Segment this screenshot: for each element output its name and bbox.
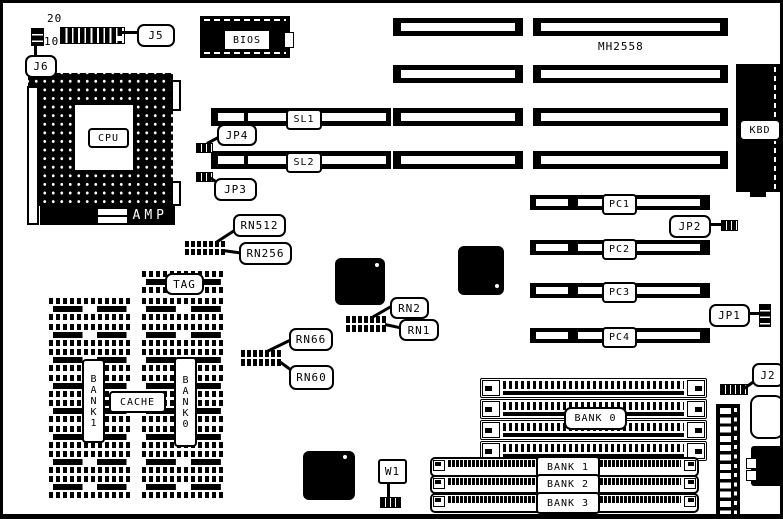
memory-slot	[393, 65, 523, 83]
amp-bar-slot	[98, 217, 127, 223]
connector-outline	[750, 395, 783, 439]
memory-slot	[533, 18, 728, 36]
qfp-chip	[335, 258, 385, 305]
callout-jp4: JP4	[217, 124, 257, 146]
w1-jumper	[380, 497, 401, 508]
kbd-tab	[750, 192, 766, 197]
cache-sram-chip	[142, 298, 225, 320]
qfp-chip	[458, 246, 504, 295]
callout-jp2: JP2	[669, 215, 711, 238]
memory-slot	[533, 151, 728, 169]
edge-connector-pin	[746, 470, 757, 481]
sl2-label: SL2	[286, 152, 322, 173]
callout-rn2: RN2	[390, 297, 429, 319]
pc1-label: PC1	[602, 194, 637, 215]
simm-socket-bank0	[480, 378, 707, 398]
socket-lever-left	[27, 86, 39, 225]
bios-notch	[284, 32, 294, 48]
pc3-label: PC3	[602, 282, 637, 303]
pin-number-bottom: 10	[44, 35, 59, 48]
socket-tab-lower	[171, 181, 181, 206]
cache-sram-chip	[49, 476, 131, 498]
jp4-jumper	[196, 143, 213, 153]
resistor-network-strip	[185, 241, 225, 255]
cache-bank1-label: BANK1	[82, 359, 105, 443]
jp2-jumper	[721, 220, 738, 231]
callout-rn256: RN256	[239, 242, 292, 265]
callout-w1: W1	[378, 459, 407, 484]
callout-j2: J2	[752, 363, 783, 387]
callout-rn66: RN66	[289, 328, 333, 351]
edge-connector-pin	[746, 458, 757, 469]
sl1-label: SL1	[286, 109, 322, 130]
callout-j5: J5	[137, 24, 175, 47]
pc2-label: PC2	[602, 239, 637, 260]
cache-bank0-label: BANK0	[174, 357, 197, 447]
cache-sram-chip	[49, 451, 131, 473]
cache-label: CACHE	[109, 391, 166, 413]
power-connector	[716, 404, 740, 518]
callout-pointer	[122, 31, 138, 34]
kbd-label: KBD	[739, 119, 781, 141]
callout-jp1: JP1	[709, 304, 750, 327]
qfp-chip	[303, 451, 355, 500]
cpu-label: CPU	[88, 128, 129, 148]
cache-sram-chip	[142, 451, 225, 473]
callout-j6: J6	[25, 55, 57, 78]
resistor-network-strip	[346, 316, 387, 332]
amp-socket-bar: AMP	[40, 205, 175, 225]
cache-sram-chip	[142, 476, 225, 498]
callout-rn1: RN1	[399, 319, 439, 341]
board-part-number: MH2558	[598, 40, 644, 53]
pin1-dot	[375, 263, 379, 267]
callout-jp3: JP3	[214, 178, 257, 201]
cache-sram-chip	[49, 298, 131, 320]
pin-number-top: 20	[47, 12, 62, 25]
j6-connector	[31, 28, 44, 46]
pc4-label: PC4	[602, 327, 637, 348]
callout-rn512: RN512	[233, 214, 286, 237]
jp1-jumper	[759, 304, 771, 327]
memory-slot	[533, 65, 728, 83]
memory-slot	[393, 18, 523, 36]
cache-sram-chip	[142, 324, 225, 346]
amp-brand-text: AMP	[133, 205, 168, 225]
memory-slot	[393, 151, 523, 169]
cache-sram-chip	[49, 324, 131, 346]
socket-tab-upper	[171, 80, 181, 111]
memory-slot	[533, 108, 728, 126]
amp-bar-slot	[98, 209, 127, 215]
bios-label: BIOS	[223, 29, 271, 51]
pin1-dot	[343, 455, 347, 459]
memory-slot	[393, 108, 523, 126]
pin1-dot	[495, 284, 499, 288]
j5-pin-header	[60, 27, 125, 44]
bank0-label: BANK 0	[564, 407, 627, 430]
callout-tag: TAG	[165, 273, 204, 295]
pin1-marker	[117, 36, 122, 41]
bank3-label: BANK 3	[536, 492, 600, 514]
callout-rn60: RN60	[289, 365, 334, 390]
resistor-network-strip	[241, 350, 281, 366]
motherboard-diagram: 20 10 J5 J6 CPU AMP BIOS MH2558 SL1 SL2 …	[0, 0, 783, 519]
